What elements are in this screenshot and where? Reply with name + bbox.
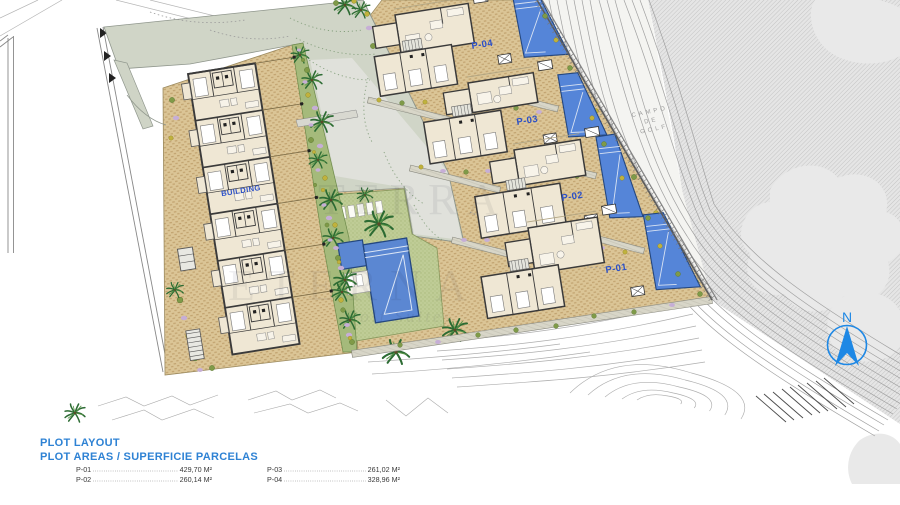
svg-text:P-02: P-02 <box>76 475 91 484</box>
svg-text:Golf Suites: Golf Suites <box>345 307 453 326</box>
svg-text:261,02 M²: 261,02 M² <box>368 465 401 474</box>
svg-text:P-03: P-03 <box>267 465 282 474</box>
svg-text:N: N <box>842 309 852 325</box>
svg-text:P-04: P-04 <box>267 475 282 484</box>
svg-text:PLOT AREAS / SUPERFICIE PARCEL: PLOT AREAS / SUPERFICIE PARCELAS <box>40 451 258 463</box>
svg-text:ETERNA: ETERNA <box>228 261 480 310</box>
svg-text:TERRA: TERRA <box>318 175 507 224</box>
svg-text:PLOT LAYOUT: PLOT LAYOUT <box>40 437 120 449</box>
svg-text:328,96 M²: 328,96 M² <box>368 475 401 484</box>
svg-text:260,14 M²: 260,14 M² <box>180 475 213 484</box>
svg-text:P-01: P-01 <box>76 465 91 474</box>
svg-text:429,70 M²: 429,70 M² <box>180 465 213 474</box>
